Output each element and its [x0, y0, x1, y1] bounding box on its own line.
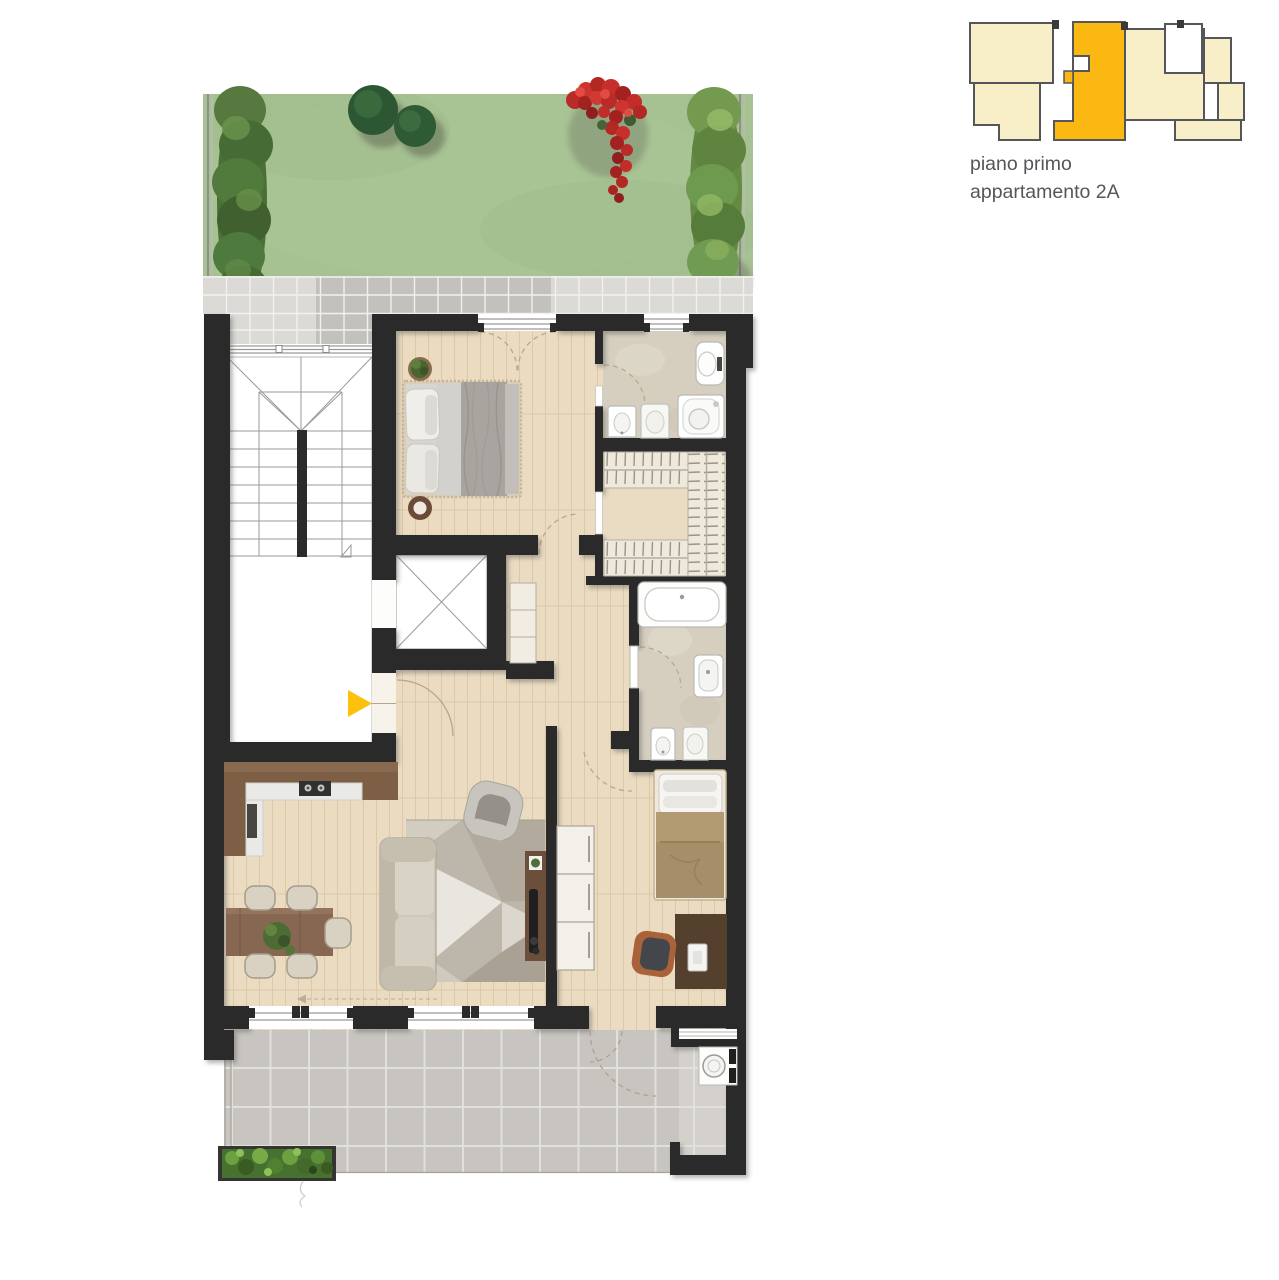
- svg-text:appartamento 2A: appartamento 2A: [970, 181, 1120, 203]
- svg-text:piano primo: piano primo: [970, 153, 1072, 175]
